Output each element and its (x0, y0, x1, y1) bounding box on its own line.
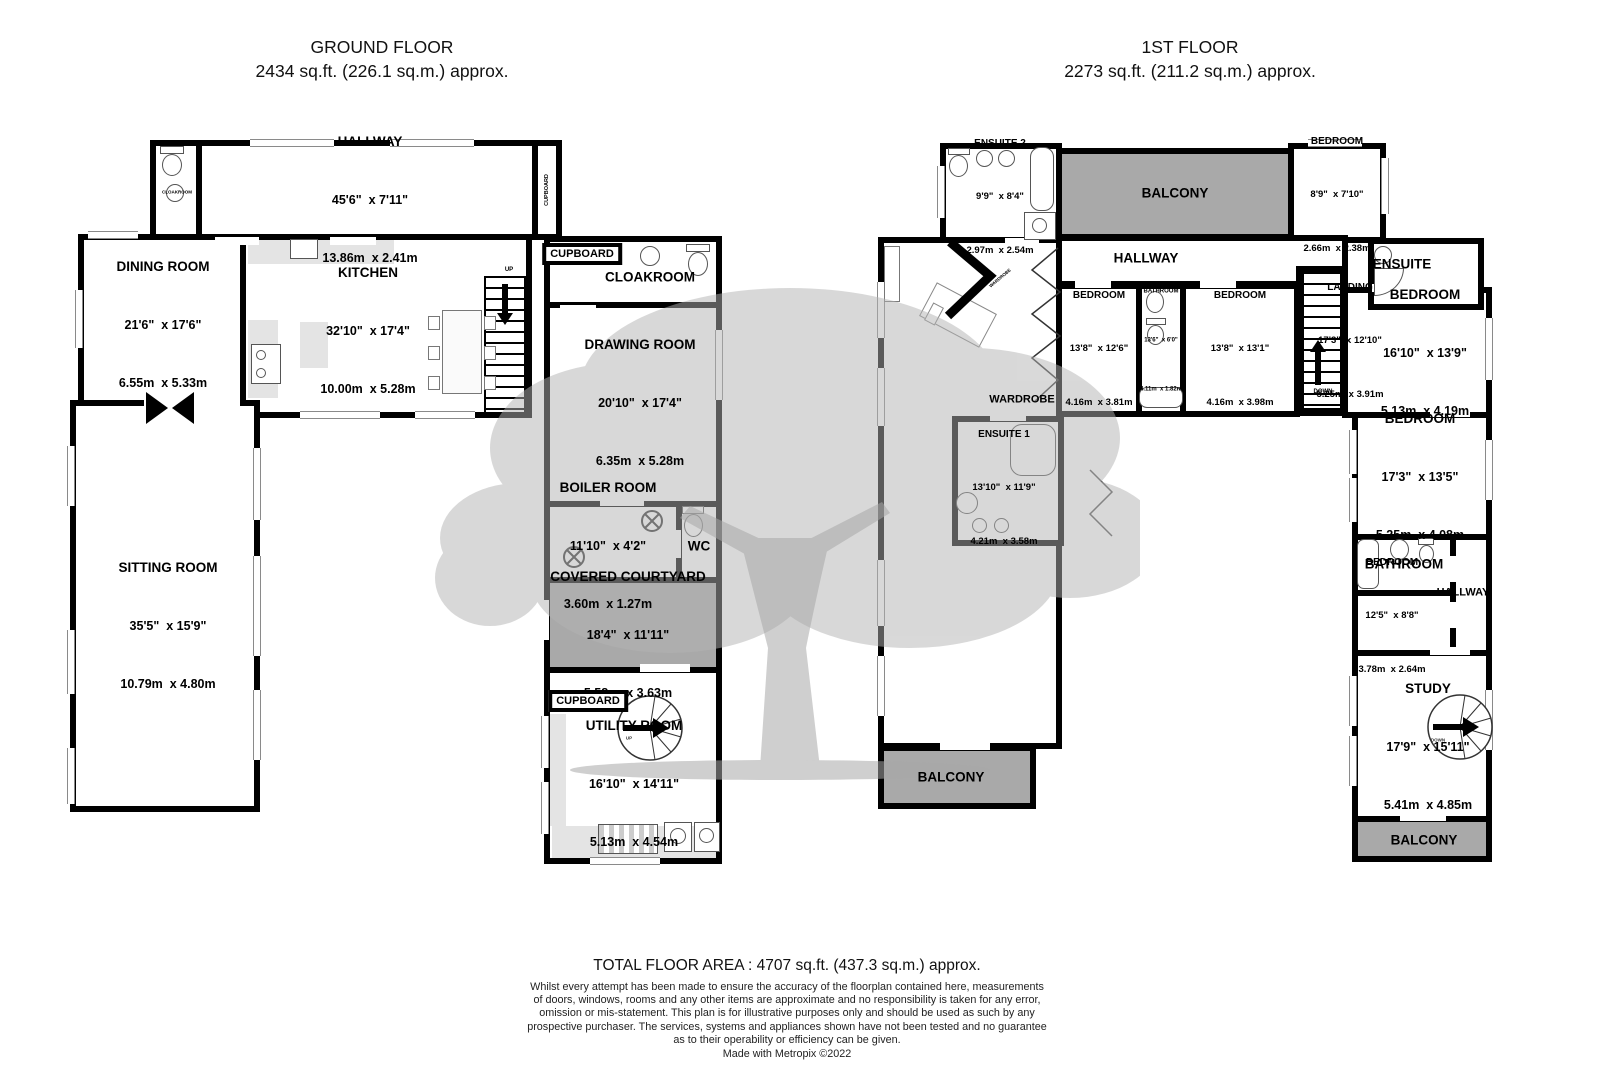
chair-icon (428, 376, 440, 390)
metropix-credit: Made with Metropix ©2022 (0, 1048, 1574, 1060)
dining-table-icon (442, 310, 482, 394)
window (253, 556, 261, 656)
window (715, 330, 723, 400)
window (1485, 440, 1493, 500)
door-gap (215, 237, 259, 245)
room-label-kitchen: KITCHEN 32'10" x 17'4" 10.00m x 5.28m (320, 222, 415, 438)
window (1485, 318, 1493, 380)
window (937, 166, 945, 218)
disclaimer-line: Whilst every attempt has been made to en… (0, 981, 1574, 994)
door-gap (541, 600, 549, 640)
toilet-icon (162, 154, 182, 176)
window (1349, 676, 1357, 726)
room-label-cloakroom-small: CLOAKROOM (162, 190, 192, 195)
total-floor-area: TOTAL FLOOR AREA : 4707 sq.ft. (437.3 sq… (0, 957, 1574, 975)
chair-icon (428, 316, 440, 330)
room-label-dining: DINING ROOM 21'6" x 17'6" 6.55m x 5.33m (117, 216, 210, 432)
toilet-icon (949, 155, 968, 177)
window (877, 656, 885, 716)
chair-icon (428, 346, 440, 360)
footer-block: TOTAL FLOOR AREA : 4707 sq.ft. (437.3 sq… (0, 957, 1574, 1060)
window (250, 139, 334, 147)
window (877, 368, 885, 426)
floorplan-canvas: GROUND FLOOR 2434 sq.ft. (226.1 sq.m.) a… (0, 0, 1610, 1080)
window (67, 630, 75, 694)
window (1381, 158, 1389, 214)
chair-icon (484, 376, 496, 390)
ground-floor-title: GROUND FLOOR (256, 36, 509, 60)
room-label-ensuite1: ENSUITE 1 13'10" x 11'9" 4.21m x 3.58m (970, 386, 1037, 590)
room-label-utility: UTILITY ROOM 16'10" x 14'11" 5.13m x 4.5… (586, 675, 683, 891)
chair-icon (484, 316, 496, 330)
disclaimer-line: as to their operability or efficiency ca… (0, 1034, 1574, 1047)
window (67, 446, 75, 506)
window (67, 748, 75, 804)
stairs-up-label: UP (505, 267, 513, 273)
window (1349, 478, 1357, 522)
ground-floor-area: 2434 sq.ft. (226.1 sq.m.) approx. (256, 60, 509, 84)
room-label-ensuite2: ENSUITE 2 9'9" x 8'4" 2.97m x 2.54m (966, 95, 1033, 299)
window (415, 411, 475, 419)
room-label-hallway2: HALLWAY (1437, 543, 1490, 640)
first-floor-header: 1ST FLOOR 2273 sq.ft. (211.2 sq.m.) appr… (1064, 36, 1316, 83)
bathtub-icon (1030, 147, 1054, 211)
room-label-balcony-right: BALCONY (1391, 790, 1458, 891)
window (1349, 736, 1357, 786)
wardrobe-zigzag-icon (1080, 460, 1125, 550)
room-label-sitting: SITTING ROOM 35'5" x 15'9" 10.79m x 4.80… (119, 517, 218, 733)
stove-icon (251, 344, 281, 384)
room-label-bedroom1: BEDROOM 13'8" x 12'6" 4.16m x 3.81m (1065, 247, 1132, 451)
room-label-landing: LANDING 17'3" x 12'10" 5.25m x 3.91m (1316, 239, 1383, 443)
disclaimer-line: prospective purchaser. The services, sys… (0, 1021, 1574, 1034)
window (541, 782, 549, 834)
sink-icon (290, 239, 318, 259)
window (253, 690, 261, 760)
first-floor-area: 2273 sq.ft. (211.2 sq.m.) approx. (1064, 60, 1316, 84)
room-label-balcony-left: BALCONY (918, 727, 985, 828)
window (75, 290, 83, 348)
window (877, 560, 885, 626)
ground-floor-header: GROUND FLOOR 2434 sq.ft. (226.1 sq.m.) a… (256, 36, 509, 83)
room-label-bedroom2: BEDROOM 13'8" x 13'1" 4.16m x 3.98m (1206, 247, 1273, 451)
window (253, 448, 261, 520)
disclaimer-line: omission or mis-statement. This plan is … (0, 1007, 1574, 1020)
first-floor-title: 1ST FLOOR (1064, 36, 1316, 60)
stove-burner-icon (256, 368, 266, 378)
stove-burner-icon (256, 350, 266, 360)
room-label-cupboard-hallway: CUPBOARD (544, 174, 550, 206)
chair-icon (484, 346, 496, 360)
washing-machine-icon (699, 828, 714, 843)
disclaimer-line: of doors, windows, rooms and any other i… (0, 994, 1574, 1007)
toilet-icon (160, 146, 184, 154)
window (541, 716, 549, 768)
room-label-bathroom-mid: BATHROOM 13'6" x 6'0" 4.11m x 1.82m (1140, 247, 1182, 436)
furniture-icon (884, 246, 900, 302)
